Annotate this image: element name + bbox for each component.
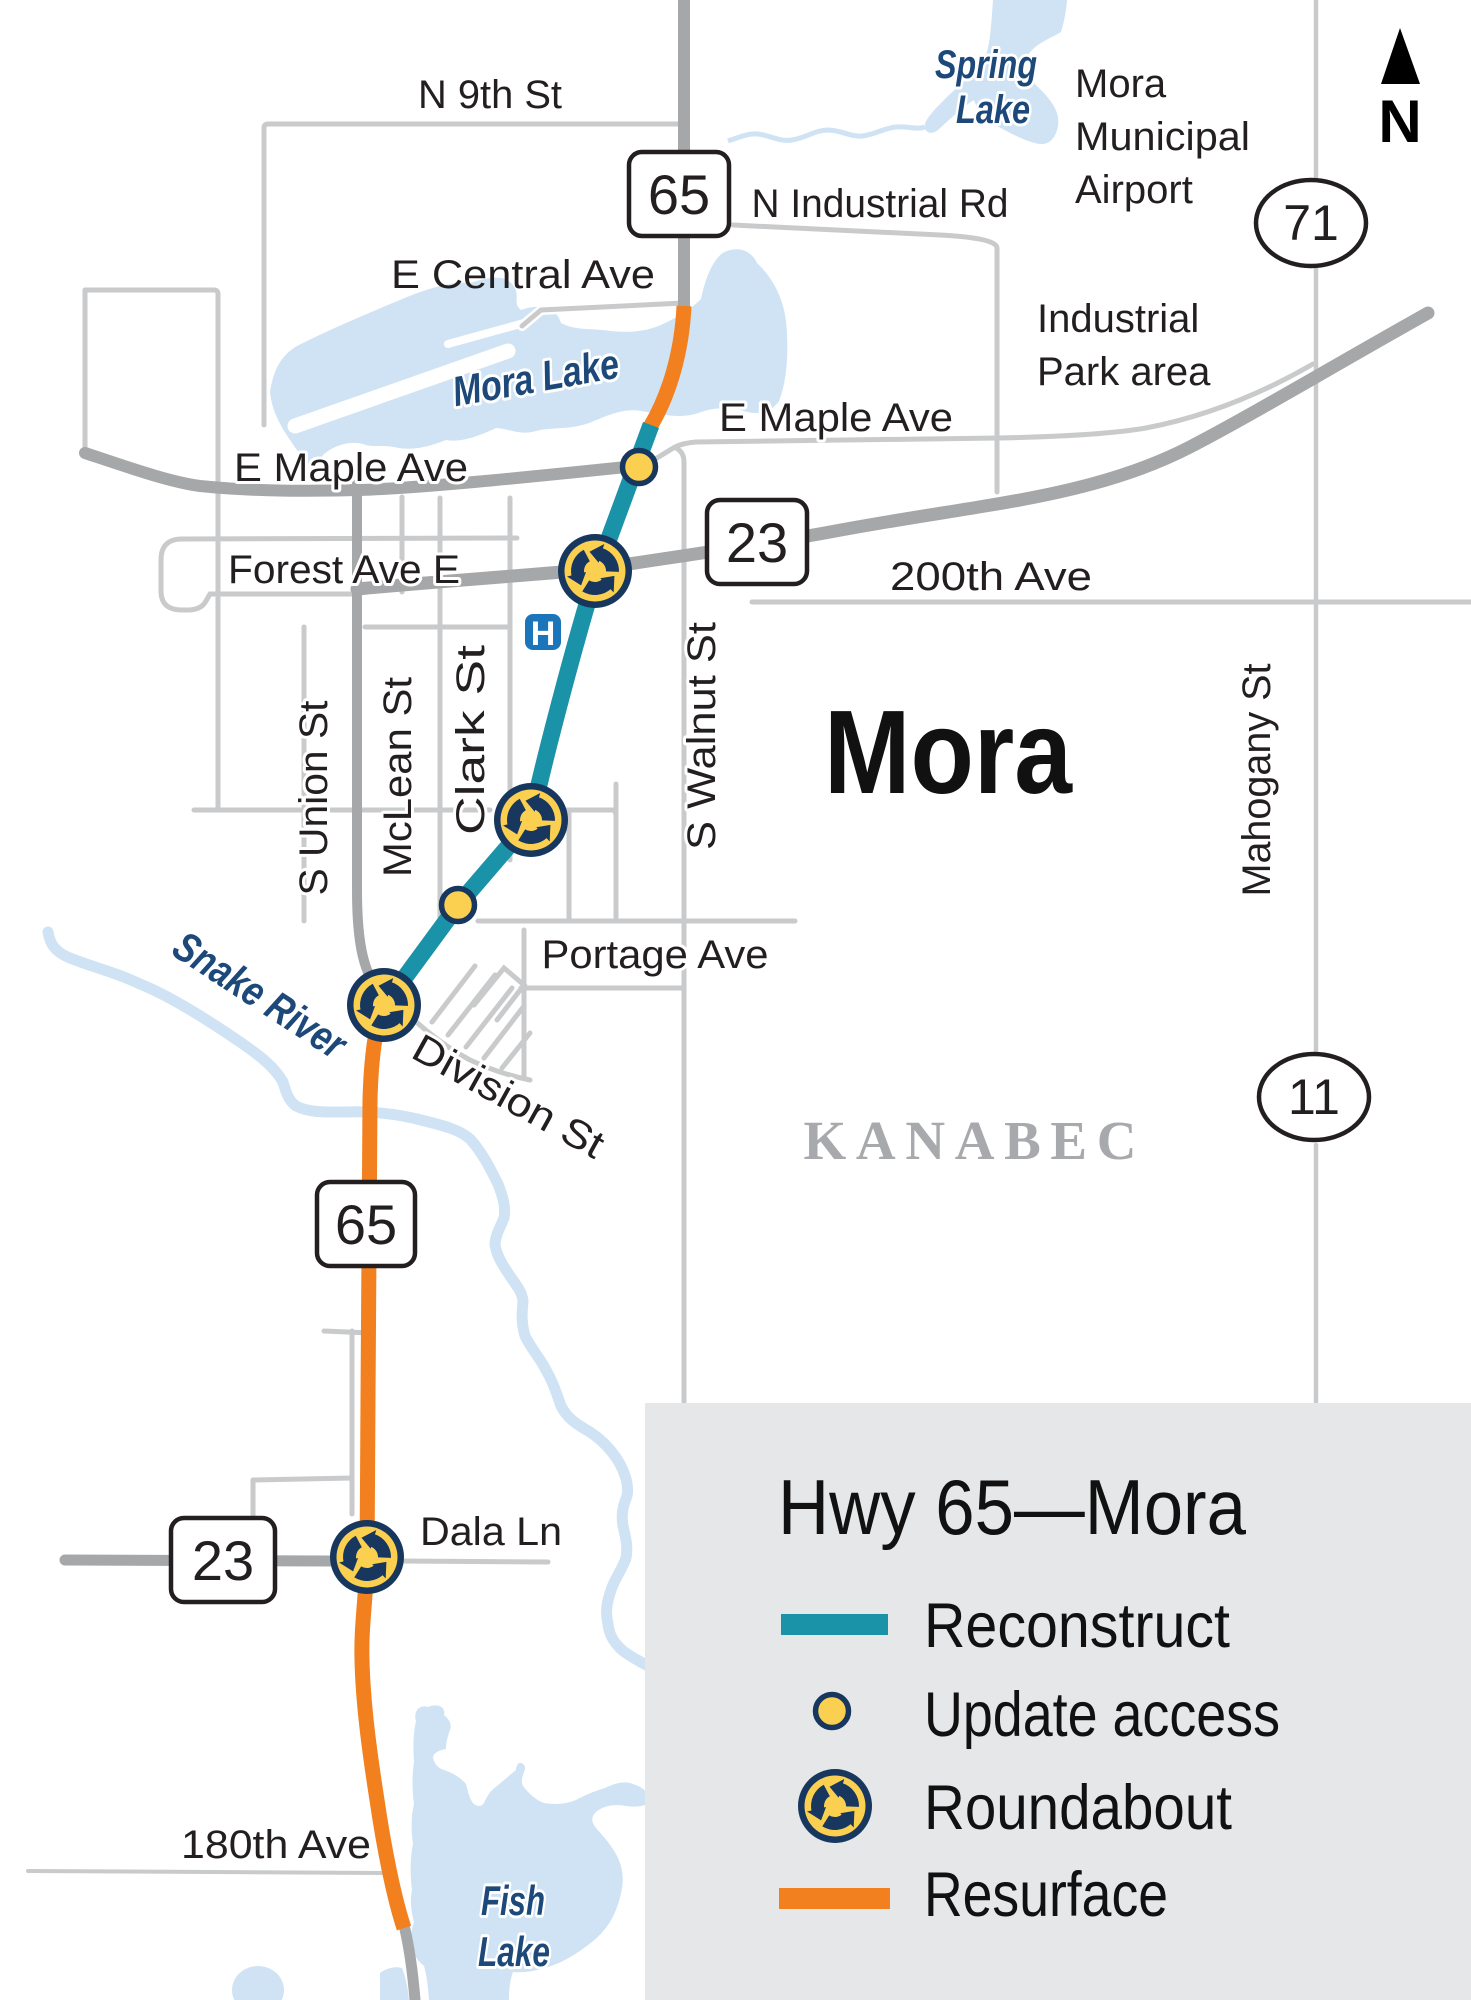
svg-text:N Industrial Rd: N Industrial Rd (752, 182, 1009, 226)
svg-text:S Walnut St: S Walnut St (680, 622, 724, 850)
svg-text:Spring: Spring (935, 43, 1037, 87)
svg-text:Reconstruct: Reconstruct (924, 1591, 1230, 1661)
svg-text:E Maple Ave: E Maple Ave (234, 446, 468, 490)
svg-text:65: 65 (648, 163, 710, 226)
svg-text:S Union St: S Union St (292, 701, 336, 896)
svg-text:200th Ave: 200th Ave (890, 555, 1092, 599)
svg-text:23: 23 (726, 511, 788, 574)
svg-text:Roundabout: Roundabout (924, 1773, 1232, 1843)
svg-text:Lake: Lake (478, 1928, 550, 1975)
svg-text:E Central Ave: E Central Ave (391, 253, 655, 297)
svg-text:E Maple Ave: E Maple Ave (719, 396, 953, 440)
svg-text:Mora: Mora (824, 686, 1073, 819)
svg-text:23: 23 (192, 1529, 254, 1592)
svg-text:Update access: Update access (924, 1680, 1280, 1750)
svg-text:180th Ave: 180th Ave (181, 1823, 371, 1867)
svg-text:Clark St: Clark St (449, 645, 493, 835)
svg-text:H: H (531, 615, 556, 653)
svg-text:Industrial: Industrial (1037, 297, 1199, 341)
svg-text:McLean St: McLean St (376, 677, 420, 877)
svg-text:65: 65 (335, 1193, 397, 1256)
svg-text:Mahogany St: Mahogany St (1235, 664, 1279, 897)
svg-text:71: 71 (1283, 195, 1339, 251)
svg-text:Hwy 65—Mora: Hwy 65—Mora (778, 1463, 1247, 1551)
svg-text:Fish: Fish (481, 1877, 545, 1924)
svg-text:Resurface: Resurface (924, 1860, 1168, 1930)
svg-text:Dala Ln: Dala Ln (420, 1510, 562, 1554)
svg-text:N: N (1378, 88, 1421, 155)
svg-text:Airport: Airport (1075, 168, 1193, 212)
svg-text:Forest Ave E: Forest Ave E (228, 548, 460, 592)
svg-text:11: 11 (1288, 1069, 1340, 1125)
svg-text:Portage Ave: Portage Ave (542, 933, 769, 977)
svg-text:N 9th St: N 9th St (418, 73, 562, 117)
svg-text:Park area: Park area (1037, 350, 1211, 394)
svg-text:Municipal: Municipal (1075, 115, 1250, 159)
svg-text:Mora: Mora (1075, 62, 1167, 106)
svg-text:Lake: Lake (956, 88, 1030, 132)
